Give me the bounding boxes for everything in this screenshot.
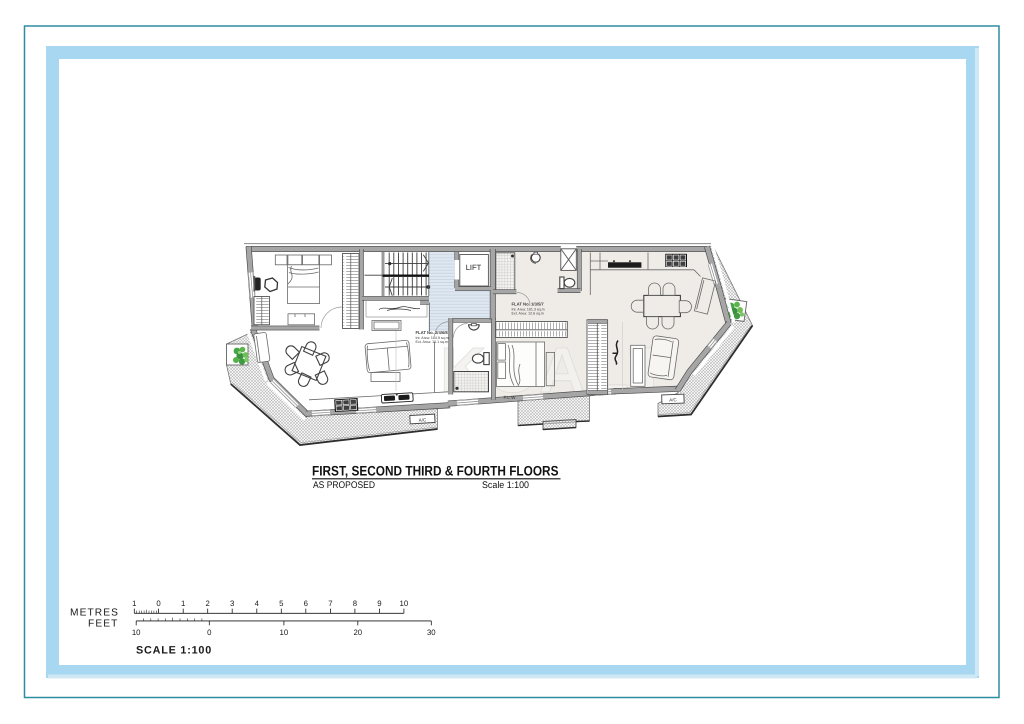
svg-text:6: 6 xyxy=(304,599,308,608)
svg-text:0: 0 xyxy=(156,599,161,608)
svg-text:1: 1 xyxy=(181,599,185,608)
svg-text:Scale 1:100: Scale 1:100 xyxy=(482,480,529,491)
svg-text:10: 10 xyxy=(132,628,141,637)
svg-text:A/C: A/C xyxy=(669,397,677,402)
svg-text:SCALE 1:100: SCALE 1:100 xyxy=(136,645,212,657)
svg-text:2: 2 xyxy=(206,599,210,608)
svg-text:P.L.W: P.L.W xyxy=(504,395,517,400)
svg-text:5: 5 xyxy=(279,599,284,608)
svg-text:7: 7 xyxy=(328,599,332,608)
svg-text:METRES: METRES xyxy=(70,608,119,619)
svg-text:FIRST, SECOND THIRD & FOURTH F: FIRST, SECOND THIRD & FOURTH FLOORS xyxy=(312,464,559,479)
svg-text:8: 8 xyxy=(353,599,357,608)
svg-text:3: 3 xyxy=(230,599,234,608)
svg-text:LIFT: LIFT xyxy=(466,263,482,272)
svg-text:Ext. Area: 10.1 sq.m: Ext. Area: 10.1 sq.m xyxy=(416,340,448,344)
svg-text:0: 0 xyxy=(207,628,212,637)
svg-text:Ext. Area: 12.6 sq.m: Ext. Area: 12.6 sq.m xyxy=(512,312,544,316)
svg-text:AS PROPOSED: AS PROPOSED xyxy=(313,480,375,491)
svg-text:20: 20 xyxy=(353,628,362,637)
svg-text:FLAT No. 2/4/6/8: FLAT No. 2/4/6/8 xyxy=(416,330,449,335)
svg-text:A/C: A/C xyxy=(419,417,428,422)
svg-text:10: 10 xyxy=(280,628,289,637)
svg-text:FEET: FEET xyxy=(88,619,118,630)
svg-text:4: 4 xyxy=(255,599,260,608)
svg-text:1: 1 xyxy=(132,599,136,608)
svg-text:30: 30 xyxy=(427,628,436,637)
svg-text:10: 10 xyxy=(400,599,409,608)
svg-text:9: 9 xyxy=(377,599,381,608)
svg-text:FLAT No. 1/3/5/7: FLAT No. 1/3/5/7 xyxy=(512,302,545,307)
